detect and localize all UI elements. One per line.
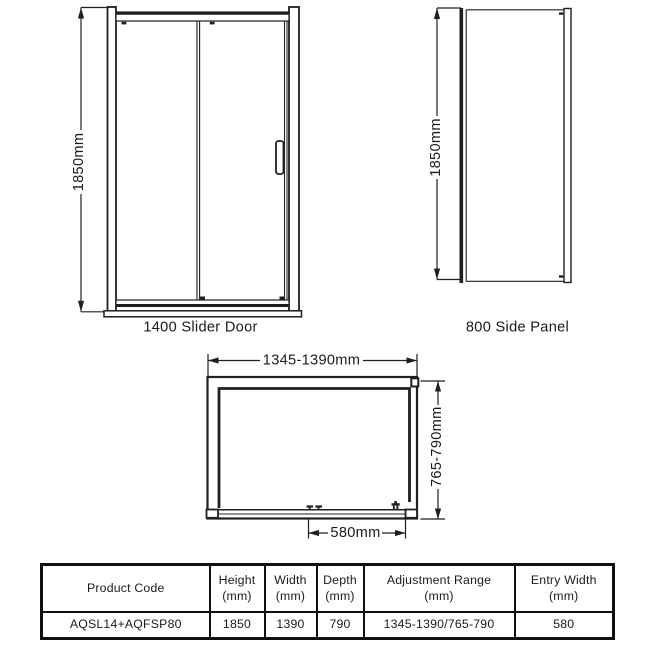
- arrowhead-right-icon: [395, 530, 406, 536]
- table-row: AQSL14+AQFSP80 1850 1390 790 1345-1390/7…: [42, 612, 614, 639]
- roller-icon: [307, 505, 314, 507]
- left-wall-profile: [108, 7, 117, 311]
- panel-structure: [460, 8, 572, 283]
- spec-table: Product Code Height(mm) Width(mm) Depth(…: [40, 563, 615, 640]
- side-panel-drawing: 1850mm 800 Side Panel: [415, 0, 580, 340]
- roller-icon: [315, 505, 322, 507]
- door-handle: [276, 141, 284, 174]
- wall-profile: [460, 8, 464, 283]
- right-wall-profile: [289, 7, 299, 311]
- arrowhead-down-icon: [434, 269, 440, 280]
- roller-icon: [309, 508, 311, 511]
- arrowhead-up-icon: [434, 8, 440, 19]
- roller-icon: [393, 506, 395, 510]
- roller-icon: [394, 501, 397, 503]
- arrowhead-left-icon: [208, 357, 219, 363]
- end-cap-block: [406, 510, 418, 518]
- top-roller-icon: [122, 22, 127, 25]
- col-header-adjustment-range: Adjustment Range(mm): [364, 565, 515, 613]
- cell-entry-width: 580: [515, 612, 614, 639]
- panel-height-label: 1850mm: [428, 118, 444, 177]
- col-header-width: Width(mm): [265, 565, 317, 613]
- slider-door-caption: 1400 Slider Door: [143, 320, 257, 336]
- col-header-depth: Depth(mm): [317, 565, 364, 613]
- fixing-bracket-icon: [559, 12, 563, 14]
- end-cap-block: [207, 510, 219, 518]
- corner-post: [411, 378, 418, 386]
- roller-icon: [396, 506, 398, 510]
- col-header-height: Height(mm): [210, 565, 265, 613]
- top-roller-icon: [210, 22, 215, 25]
- front-profile-channel: [564, 9, 571, 283]
- cell-height: 1850: [210, 612, 265, 639]
- arrowhead-up-icon: [78, 8, 84, 19]
- arrowhead-up-icon: [435, 381, 441, 392]
- shower-tray-edge: [104, 311, 302, 317]
- arrowhead-left-icon: [309, 530, 320, 536]
- roller-icon: [318, 508, 320, 511]
- cell-product-code: AQSL14+AQFSP80: [42, 612, 210, 639]
- fixing-bracket-icon: [559, 275, 563, 277]
- shower-enclosure-spec-sheet: 1850mm: [0, 0, 650, 650]
- arrowhead-down-icon: [78, 301, 84, 312]
- plan-enclosure: [207, 377, 419, 519]
- arrowhead-right-icon: [407, 357, 418, 363]
- slider-door-drawing: 1850mm: [55, 0, 315, 340]
- plan-depth-label: 765-790mm: [429, 406, 445, 487]
- roller-icon: [392, 503, 400, 505]
- col-header-entry-width: Entry Width(mm): [515, 565, 614, 613]
- plan-width-label: 1345-1390mm: [263, 353, 360, 369]
- door-frame: [104, 7, 302, 317]
- bottom-guide-icon: [280, 297, 285, 301]
- plan-entry-label: 580mm: [330, 525, 380, 541]
- bottom-guide-icon: [200, 297, 205, 301]
- cell-depth: 790: [317, 612, 364, 639]
- side-panel-caption: 800 Side Panel: [466, 320, 569, 336]
- cell-adjustment-range: 1345-1390/765-790: [364, 612, 515, 639]
- arrowhead-down-icon: [435, 509, 441, 520]
- tray-outline: [208, 377, 418, 519]
- door-height-label: 1850mm: [71, 133, 87, 192]
- door-glass-panels: [122, 21, 288, 300]
- col-header-product-code: Product Code: [42, 565, 210, 613]
- table-header-row: Product Code Height(mm) Width(mm) Depth(…: [42, 565, 614, 613]
- plan-view-drawing: 1345-1390mm: [190, 348, 455, 548]
- cell-width: 1390: [265, 612, 317, 639]
